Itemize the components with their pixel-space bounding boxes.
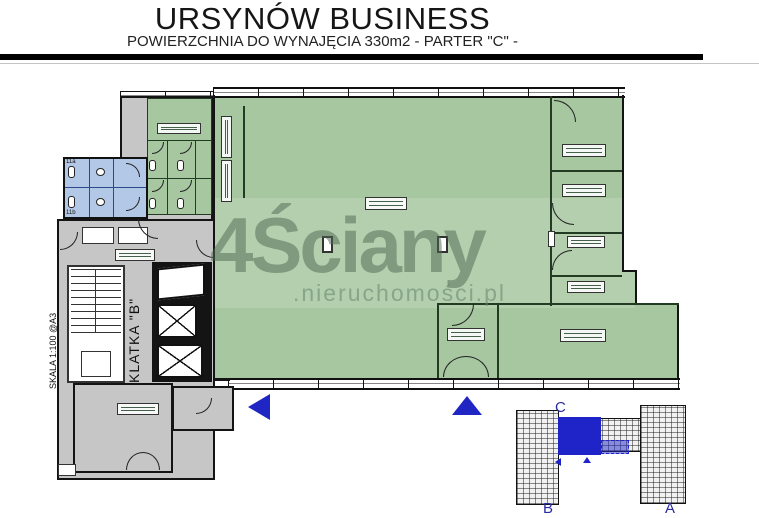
nav-arrow-up-icon (452, 396, 482, 415)
room-label (562, 144, 606, 157)
floor-plan-page: URSYNÓW BUSINESS POWIERZCHNIA DO WYNAJĘC… (0, 0, 759, 518)
minimap-wing-a (640, 405, 686, 504)
stairwell-label: KLATKA "B" (126, 283, 142, 383)
minimap-arrow-left-icon (555, 458, 561, 466)
nav-arrow-left-icon (248, 394, 270, 420)
room-label (221, 116, 232, 158)
interior-wall (437, 303, 439, 378)
stall-partition (113, 159, 114, 217)
stall-partition (195, 140, 196, 215)
minimap-label-b: B (543, 500, 553, 517)
toilet-fixture (177, 198, 184, 209)
stall-partition (167, 140, 168, 215)
lobby-area (73, 383, 173, 473)
minimap-highlight-secondary (601, 440, 629, 454)
exterior-wall (635, 270, 637, 305)
page-subtitle: POWIERZCHNIA DO WYNAJĘCIA 330m2 - PARTER… (0, 33, 645, 50)
exterior-wall (213, 378, 230, 381)
elevator-car (157, 304, 197, 338)
room-label (447, 328, 485, 341)
stall-partition (89, 159, 90, 217)
window-band-top (213, 87, 625, 98)
minimap-highlight (558, 417, 601, 455)
room-label (117, 403, 159, 415)
interior-wall (552, 275, 622, 277)
closet (82, 227, 114, 244)
minimap-label-c: C (555, 399, 566, 416)
room-label (221, 160, 232, 202)
interior-wall (497, 303, 499, 378)
elevator-shaft (152, 262, 212, 382)
elevator-car (157, 344, 203, 378)
toilet-fixture (149, 160, 156, 171)
watermark-domain: .nieruchomości.pl (293, 280, 506, 307)
interior-wall (552, 170, 622, 172)
sink-fixture (96, 168, 105, 176)
minimap: C B A (513, 400, 691, 518)
minimap-wing-b (516, 410, 559, 505)
watermark-brand: 4Ściany (210, 206, 484, 284)
toilet-fixture (68, 166, 75, 178)
exterior-wall (677, 303, 679, 380)
minimap-arrow-up-icon (583, 457, 591, 463)
elevator-car (157, 263, 205, 300)
room-label (157, 123, 201, 134)
exterior-wall (622, 95, 624, 272)
room-label (562, 184, 606, 197)
stairwell (67, 265, 125, 383)
toilet-fixture (68, 196, 75, 208)
stair-landing (81, 351, 111, 377)
toilet-fixture (177, 160, 184, 171)
stall-partition (147, 178, 212, 179)
stair-divider (95, 269, 96, 333)
room-label (567, 281, 605, 293)
entry-step (58, 464, 76, 476)
stall-partition (147, 140, 212, 141)
wall-opening (548, 231, 555, 247)
header-divider-bar (0, 54, 703, 60)
stall-partition (65, 187, 146, 188)
toilet-label-b: 11b (66, 210, 76, 216)
corridor-label (115, 249, 155, 261)
room-label (560, 329, 606, 342)
interior-wall (552, 232, 622, 234)
page-title: URSYNÓW BUSINESS (0, 1, 645, 37)
window-band-bottom (228, 378, 680, 390)
header-hairline (0, 63, 759, 64)
toilet-fixture (149, 198, 156, 209)
scale-note: SKALA 1:100 @A3 (48, 289, 58, 389)
sink-fixture (96, 198, 105, 206)
toilet-label-a: 11a (66, 159, 76, 165)
interior-wall (243, 106, 245, 198)
minimap-label-a: A (665, 500, 675, 517)
stair-treads (71, 269, 121, 333)
room-label (567, 236, 605, 248)
